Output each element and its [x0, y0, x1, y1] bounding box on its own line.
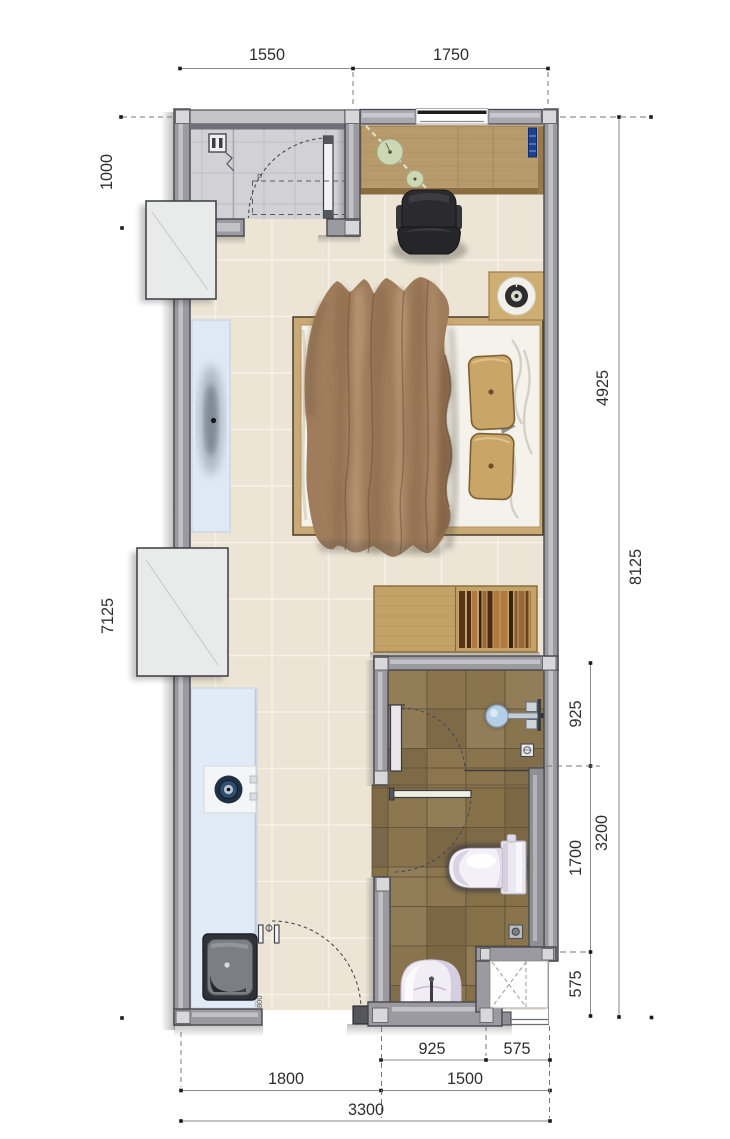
svg-text:P: P — [257, 173, 262, 182]
svg-text:575: 575 — [567, 970, 585, 997]
svg-text:1000: 1000 — [98, 154, 116, 190]
svg-text:7125: 7125 — [99, 598, 117, 634]
svg-text:3300: 3300 — [348, 1101, 384, 1119]
svg-text:3200: 3200 — [593, 815, 611, 851]
svg-text:1800: 1800 — [268, 1070, 304, 1088]
svg-text:575: 575 — [503, 1040, 530, 1058]
svg-text:1500: 1500 — [447, 1070, 483, 1088]
svg-text:8125: 8125 — [627, 549, 645, 585]
svg-text:925: 925 — [567, 700, 585, 727]
svg-text:4925: 4925 — [594, 370, 612, 406]
svg-text:925: 925 — [418, 1040, 445, 1058]
svg-text:1700: 1700 — [567, 840, 585, 876]
svg-text:800: 800 — [255, 995, 264, 1008]
svg-text:1550: 1550 — [249, 46, 285, 64]
svg-text:1750: 1750 — [433, 46, 469, 64]
